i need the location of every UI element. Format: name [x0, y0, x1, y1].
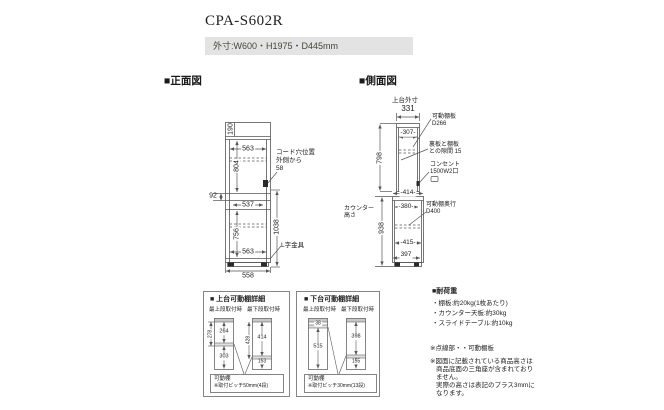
diagram-lines [0, 0, 664, 410]
cord-hole-note-line3: 58 [276, 166, 283, 173]
front-dim-558: 558 [242, 273, 254, 280]
cord-hole-mark [263, 180, 268, 187]
lower-detail-title: ■ 下台可動棚詳細 [304, 296, 359, 303]
side-dim-380: -380- [397, 204, 414, 211]
lower-detail-left-bottom: 515 [312, 344, 323, 350]
side-dim-415: -415- [399, 240, 416, 247]
height-note-line4: 実際の高さは表記のプラス3mmに [436, 382, 535, 390]
height-note-line2: 商品底面の三角座が含まれており [436, 366, 533, 374]
upper-detail-right-top: 414 [256, 335, 267, 341]
counter-label-line2: 高さ [344, 213, 356, 219]
front-dim-190: 190 [228, 123, 235, 135]
side-dim-938: 938 [379, 221, 386, 235]
front-dim-563-bottom: 563 [241, 249, 255, 256]
upper-detail-right-label: 最下段取付時 [247, 308, 280, 314]
height-note-line3: ません。 [436, 374, 462, 382]
side-dim-798: 798 [377, 151, 384, 165]
front-dim-1038: 1038 [274, 218, 281, 236]
shelf-note-line2: D266 [432, 121, 446, 127]
front-dim-92: 92 [209, 193, 217, 200]
upper-detail-left-outer: 278 [209, 329, 214, 339]
load-notes-title: ■耐荷重 [432, 288, 457, 295]
height-note-line1: ※図面に記載されている商品高さは [430, 358, 533, 366]
l-bracket-note: L字金具 [281, 243, 304, 250]
gap-note-line1: 裏板と棚板 [429, 142, 459, 148]
lower-detail-left-top: 38 [314, 322, 322, 327]
upper-detail-title: ■ 上台可動棚詳細 [210, 296, 265, 303]
gap-note-line2: との隙間 15 [429, 149, 461, 155]
shelf-note-line1: 可動棚板 [432, 114, 456, 120]
upper-detail-note-line1: 可動棚 [214, 377, 231, 383]
side-dim-307: -307- [399, 130, 416, 137]
front-dim-756: 756 [234, 227, 241, 241]
load-note-item: ・カウンター天板:約30kg [432, 310, 506, 318]
load-note-item: ・棚板:約20kg(1枚あたり) [432, 300, 508, 308]
front-dim-804: 804 [234, 159, 241, 173]
lower-detail-note-line1: 可動棚 [308, 377, 325, 383]
lower-detail-right-top: 398 [350, 334, 361, 340]
depth-note-line1: 可動棚奥行 [426, 202, 456, 208]
spec-sheet: CPA-S602R 外寸:W600・H1975・D445mm ■正面図 ■側面図… [0, 0, 664, 410]
depth-note-line2: D400 [426, 209, 440, 215]
counter-label-line1: カウンター [344, 206, 374, 212]
outer-dimensions-box: 外寸:W600・H1975・D445mm [205, 37, 413, 55]
lower-detail-right-label: 最下段取付時 [341, 308, 374, 314]
upper-detail-left-label: 最上段取付時 [209, 308, 242, 314]
side-dim-414: -414- [399, 190, 416, 197]
front-view-label: ■正面図 [164, 76, 202, 87]
lower-detail-note-line2: ※取付ピッチ30mm(13段) [308, 384, 365, 389]
outlet-note-line2: 1500W2口 [430, 169, 458, 175]
side-view-label: ■側面図 [359, 76, 397, 87]
front-dim-563-top: 563 [241, 146, 255, 153]
lower-detail-right-bottom: 155 [351, 360, 361, 365]
upper-detail-right-bottom: 153 [257, 360, 267, 365]
side-dim-331: 331 [401, 105, 414, 113]
upper-detail-left-top: 264 [218, 329, 229, 335]
load-note-item: ・スライドテーブル:約10kg [432, 320, 513, 328]
upper-detail-left-bottom: 303 [218, 354, 229, 360]
front-view-drawing [226, 123, 271, 267]
side-dim-397: 397 [400, 252, 413, 259]
outlet-mark [417, 181, 420, 186]
height-note-line5: なります。 [436, 390, 468, 398]
cord-hole-note-line2: 外側から [276, 158, 302, 165]
front-dim-537: 537 [241, 202, 255, 209]
page-title: CPA-S602R [205, 14, 283, 29]
lower-detail-left-label: 最上段取付時 [303, 308, 336, 314]
upper-detail-right-outer: 428 [247, 335, 252, 345]
upper-detail-note-line2: ※取付ピッチ50mm(4段) [214, 384, 268, 389]
outlet-note-line1: コンセント [430, 162, 460, 168]
triangle-note: ※点線部・・可動棚板 [430, 345, 494, 353]
cord-hole-note-line1: コード穴位置 [276, 150, 315, 157]
